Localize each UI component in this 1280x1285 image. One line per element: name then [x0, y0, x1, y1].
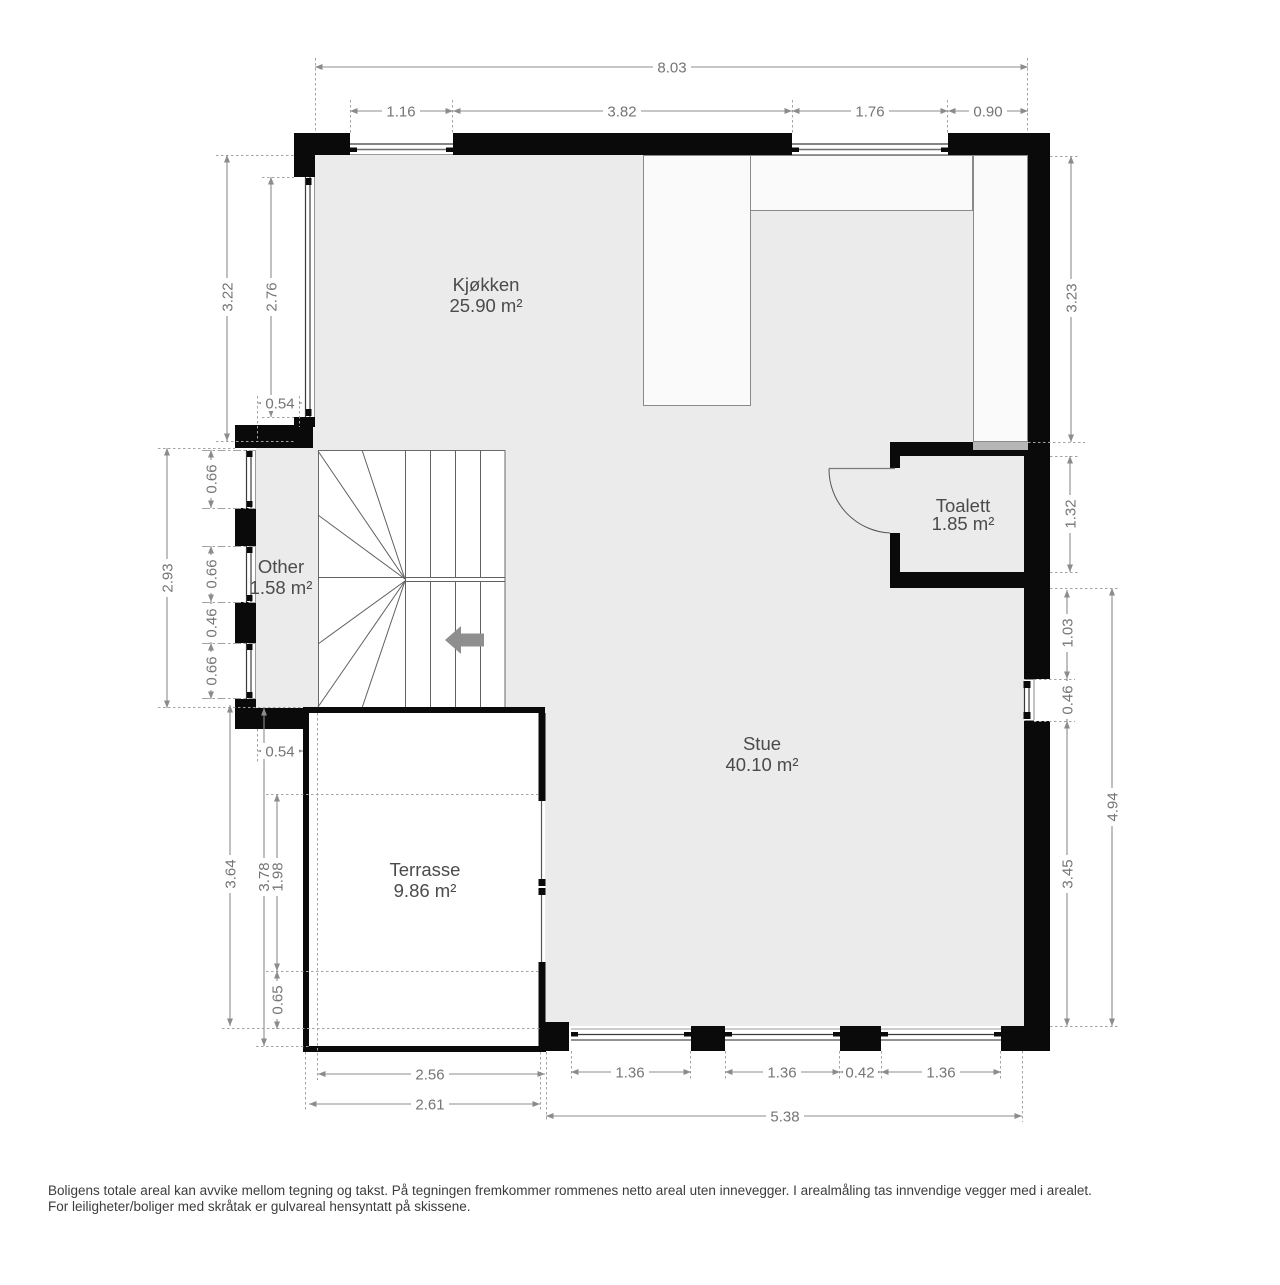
- svg-text:0.54: 0.54: [265, 396, 294, 413]
- svg-text:0.46: 0.46: [204, 608, 221, 637]
- svg-text:Stue: Stue: [743, 733, 781, 754]
- svg-text:Other: Other: [258, 556, 304, 577]
- svg-text:3.45: 3.45: [1060, 859, 1077, 888]
- svg-text:1.58 m²: 1.58 m²: [250, 577, 313, 598]
- svg-text:0.90: 0.90: [973, 104, 1002, 121]
- svg-text:2.56: 2.56: [415, 1067, 444, 1084]
- svg-text:3.23: 3.23: [1064, 283, 1081, 312]
- svg-text:0.66: 0.66: [204, 559, 221, 588]
- svg-text:3.22: 3.22: [220, 282, 237, 311]
- svg-text:2.61: 2.61: [415, 1097, 444, 1114]
- svg-text:40.10 m²: 40.10 m²: [725, 754, 798, 775]
- svg-text:1.85 m²: 1.85 m²: [932, 513, 995, 534]
- svg-text:2.76: 2.76: [264, 282, 281, 311]
- svg-text:0.42: 0.42: [845, 1065, 874, 1082]
- svg-text:1.36: 1.36: [767, 1065, 796, 1082]
- svg-text:1.76: 1.76: [855, 104, 884, 121]
- svg-text:0.65: 0.65: [270, 985, 287, 1014]
- svg-text:5.38: 5.38: [770, 1109, 799, 1126]
- svg-text:3.64: 3.64: [223, 859, 240, 888]
- svg-text:25.90 m²: 25.90 m²: [449, 295, 522, 316]
- svg-text:2.93: 2.93: [160, 563, 177, 592]
- svg-text:9.86 m²: 9.86 m²: [394, 880, 457, 901]
- svg-text:Kjøkken: Kjøkken: [453, 274, 520, 295]
- svg-text:1.36: 1.36: [926, 1065, 955, 1082]
- svg-text:1.32: 1.32: [1063, 499, 1080, 528]
- svg-text:8.03: 8.03: [657, 60, 686, 77]
- svg-text:0.66: 0.66: [204, 464, 221, 493]
- svg-text:0.46: 0.46: [1060, 685, 1077, 714]
- svg-text:Boligens totale areal kan avvi: Boligens totale areal kan avvike mellom …: [48, 1183, 1092, 1198]
- svg-text:1.98: 1.98: [270, 862, 287, 891]
- svg-text:1.36: 1.36: [615, 1065, 644, 1082]
- svg-text:0.54: 0.54: [265, 744, 294, 761]
- svg-text:Terrasse: Terrasse: [390, 859, 461, 880]
- svg-text:3.82: 3.82: [607, 104, 636, 121]
- svg-text:1.03: 1.03: [1060, 618, 1077, 647]
- svg-text:For leiligheter/boliger med sk: For leiligheter/boliger med skråtak er g…: [48, 1199, 470, 1214]
- svg-text:4.94: 4.94: [1105, 792, 1122, 821]
- svg-text:0.66: 0.66: [204, 656, 221, 685]
- svg-text:1.16: 1.16: [386, 104, 415, 121]
